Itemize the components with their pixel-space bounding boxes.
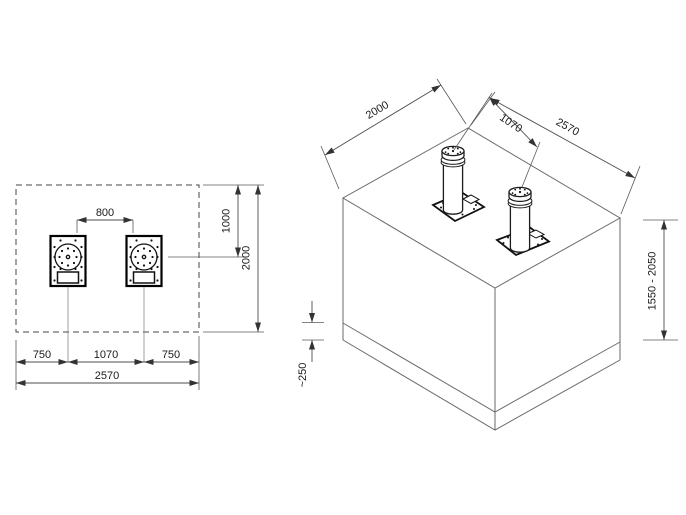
dimension-800: 800 (77, 207, 133, 233)
dim-label-iso-1070: 1070 (497, 112, 524, 136)
dimension-iso-2570: 2570 (471, 92, 640, 214)
technical-drawing-page: 800 1000 2000 750 1070 750 (0, 0, 686, 515)
dim-label-base-thickness: ~250 (297, 363, 309, 388)
dim-label-2000: 2000 (241, 246, 253, 270)
cap-center-dot (519, 191, 521, 193)
dim-label-2570: 2570 (95, 370, 119, 382)
dim-label-750-left: 750 (33, 349, 51, 361)
cap-center-dot (452, 150, 454, 152)
dim-label-1070: 1070 (94, 349, 118, 361)
dimension-1070: 1070 (68, 349, 144, 362)
iso-view: 2000 1070 2570 1550 - 2050 (297, 79, 678, 430)
dimension-2570: 2570 (16, 370, 199, 383)
dimension-750-right: 750 (144, 349, 199, 362)
dim-label-iso-2000: 2000 (364, 99, 391, 122)
base-slab-line (343, 323, 620, 412)
plan-view: 800 1000 2000 750 1070 750 (16, 185, 264, 390)
dimension-1000: 1000 (221, 185, 239, 257)
dim-label-height-range: 1550 - 2050 (647, 252, 659, 311)
dimension-iso-1070: 1070 (454, 93, 540, 187)
flange-plate-plan-right (127, 236, 162, 286)
flange-plate-plan-left (51, 236, 86, 286)
dim-label-750-right: 750 (162, 349, 180, 361)
dimension-base-thickness: ~250 (297, 301, 324, 387)
dimension-height-range: 1550 - 2050 (643, 220, 678, 340)
bollard-cylinder (508, 187, 532, 252)
bollard-back (433, 146, 484, 221)
bollard-foundation-drawing: 800 1000 2000 750 1070 750 (0, 0, 686, 515)
foundation-block (343, 128, 620, 430)
dimension-2000: 2000 (241, 185, 259, 332)
dim-label-800: 800 (96, 207, 114, 219)
bollard-front (497, 187, 549, 255)
dim-label-1000: 1000 (221, 209, 233, 233)
block-bottom-edges (343, 340, 620, 430)
dimension-750-left: 750 (16, 349, 68, 362)
bollard-cylinder (441, 146, 465, 214)
